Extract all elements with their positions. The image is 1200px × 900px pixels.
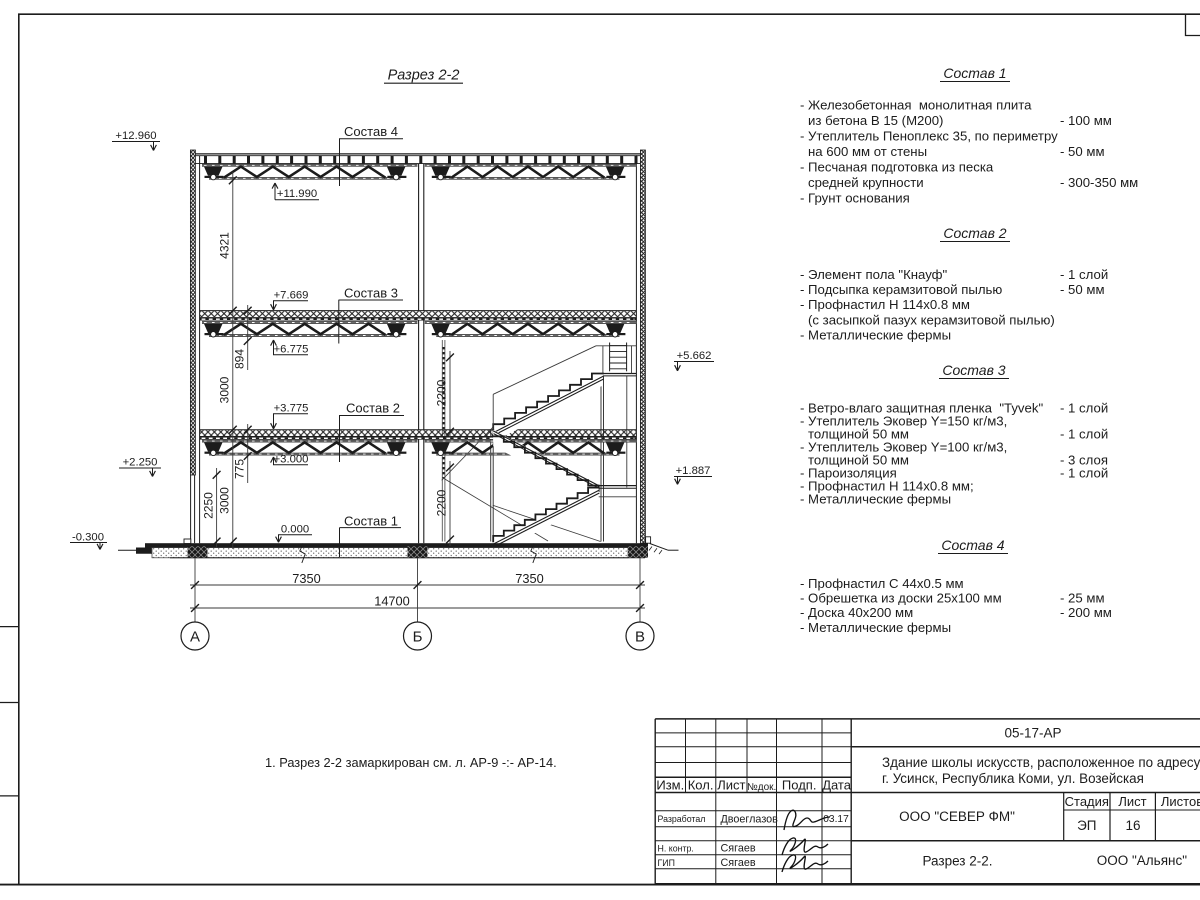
- svg-text:7350: 7350: [292, 571, 320, 586]
- svg-text:-0.300: -0.300: [72, 532, 104, 544]
- svg-text:средней крупности: средней крупности: [808, 175, 924, 190]
- svg-text:2250: 2250: [201, 492, 215, 519]
- svg-text:Двоеглазов: Двоеглазов: [721, 813, 779, 825]
- svg-text:Состав 3: Состав 3: [344, 286, 398, 301]
- svg-text:- 300-350 мм: - 300-350 мм: [1060, 175, 1138, 190]
- svg-text:Состав 2: Состав 2: [943, 225, 1006, 241]
- svg-text:4321: 4321: [218, 232, 232, 259]
- svg-text:- 1 слой: - 1 слой: [1060, 401, 1108, 416]
- svg-text:+5.662: +5.662: [677, 350, 712, 362]
- svg-text:7350: 7350: [515, 571, 543, 586]
- svg-text:Разрез 2-2: Разрез 2-2: [388, 68, 460, 84]
- svg-text:775: 775: [232, 459, 246, 479]
- svg-text:Состав 2: Состав 2: [346, 401, 400, 416]
- svg-text:из бетона В 15 (М200): из бетона В 15 (М200): [808, 113, 943, 128]
- svg-text:+6.775: +6.775: [274, 344, 309, 356]
- svg-text:Сягаев: Сягаев: [721, 843, 756, 855]
- svg-text:Б: Б: [413, 628, 423, 645]
- svg-text:16: 16: [1125, 818, 1140, 833]
- svg-text:+12.960: +12.960: [115, 130, 156, 142]
- svg-text:ООО "СЕВЕР ФМ": ООО "СЕВЕР ФМ": [899, 809, 1015, 824]
- svg-text:№док.: №док.: [747, 782, 776, 793]
- svg-text:0.000: 0.000: [281, 524, 309, 536]
- svg-text:- 100 мм: - 100 мм: [1060, 113, 1112, 128]
- svg-text:+11.990: +11.990: [277, 188, 317, 200]
- svg-text:Состав 3: Состав 3: [942, 362, 1005, 378]
- svg-text:- 50 мм: - 50 мм: [1060, 144, 1105, 159]
- svg-text:Разработал: Разработал: [658, 814, 706, 824]
- svg-text:- Железобетонная монолитная п: - Железобетонная монолитная плита: [800, 98, 1032, 113]
- svg-text:14700: 14700: [374, 594, 410, 609]
- svg-text:+1.887: +1.887: [676, 465, 711, 477]
- svg-text:+3.000: +3.000: [274, 454, 309, 466]
- svg-text:Н. контр.: Н. контр.: [658, 843, 694, 853]
- svg-text:- 1 слой: - 1 слой: [1060, 427, 1108, 442]
- svg-text:ООО "Альянс": ООО "Альянс": [1097, 853, 1187, 868]
- svg-text:+3.775: +3.775: [274, 403, 309, 415]
- svg-text:Изм.: Изм.: [656, 778, 684, 793]
- svg-text:- Доска 40х200 мм: - Доска 40х200 мм: [800, 605, 913, 620]
- svg-text:- Профнастил С 44х0.5 мм: - Профнастил С 44х0.5 мм: [800, 576, 964, 591]
- svg-text:Состав 4: Состав 4: [941, 537, 1004, 553]
- svg-text:- Обрешетка из доски 25х100 мм: - Обрешетка из доски 25х100 мм: [800, 591, 1002, 606]
- svg-text:- Металлические фермы: - Металлические фермы: [800, 327, 951, 342]
- svg-text:Кол.: Кол.: [688, 778, 714, 793]
- svg-text:Подп.: Подп.: [782, 778, 817, 793]
- svg-text:ЭП: ЭП: [1077, 818, 1096, 833]
- svg-text:на 600 мм от стены: на 600 мм от стены: [808, 144, 927, 159]
- svg-text:3000: 3000: [218, 376, 232, 403]
- svg-text:Листов: Листов: [1161, 794, 1200, 809]
- svg-text:- 1 слой: - 1 слой: [1060, 267, 1108, 282]
- svg-text:+2.250: +2.250: [123, 457, 158, 469]
- svg-text:2200: 2200: [435, 489, 449, 516]
- svg-text:2200: 2200: [435, 379, 449, 406]
- svg-text:- 1 слой: - 1 слой: [1060, 466, 1108, 481]
- svg-text:Состав 1: Состав 1: [943, 65, 1006, 81]
- svg-text:05-17-АР: 05-17-АР: [1004, 726, 1061, 741]
- svg-text:- 50 мм: - 50 мм: [1060, 282, 1105, 297]
- svg-text:Состав 1: Состав 1: [344, 514, 398, 529]
- svg-text:г. Усинск, Республика Коми, ул: г. Усинск, Республика Коми, ул. Возейска…: [882, 771, 1144, 786]
- svg-text:- Подсыпка керамзитовой пылью: - Подсыпка керамзитовой пылью: [800, 282, 1002, 297]
- svg-text:+7.669: +7.669: [274, 290, 309, 302]
- svg-text:ГИП: ГИП: [658, 858, 675, 868]
- svg-text:Состав 4: Состав 4: [344, 124, 398, 139]
- svg-text:Лист: Лист: [1118, 794, 1146, 809]
- svg-text:- Грунт основания: - Грунт основания: [800, 191, 910, 206]
- svg-text:(с засыпкой пазух керамзитовой: (с засыпкой пазух керамзитовой пылью): [808, 312, 1055, 327]
- svg-text:- Профнастил Н 114х0.8 мм: - Профнастил Н 114х0.8 мм: [800, 297, 970, 312]
- svg-text:- Песчаная подготовка из песка: - Песчаная подготовка из песка: [800, 160, 994, 175]
- svg-text:Дата: Дата: [822, 778, 852, 793]
- svg-text:03.17: 03.17: [823, 814, 849, 825]
- svg-text:В: В: [635, 628, 645, 645]
- svg-text:А: А: [190, 628, 200, 645]
- svg-text:Лист: Лист: [717, 778, 745, 793]
- svg-text:3000: 3000: [218, 487, 232, 514]
- svg-text:Разрез 2-2.: Разрез 2-2.: [922, 854, 992, 869]
- svg-text:- Металлические фермы: - Металлические фермы: [800, 492, 951, 507]
- svg-text:- 200 мм: - 200 мм: [1060, 605, 1112, 620]
- svg-text:- Металлические фермы: - Металлические фермы: [800, 620, 951, 635]
- svg-text:Здание школы искусств, располо: Здание школы искусств, расположенное по …: [882, 755, 1200, 770]
- svg-text:- 25 мм: - 25 мм: [1060, 591, 1105, 606]
- svg-text:Стадия: Стадия: [1065, 794, 1109, 809]
- svg-text:- Утеплитель Пеноплекс 35, по: - Утеплитель Пеноплекс 35, по периметру: [800, 129, 1058, 144]
- svg-text:894: 894: [232, 349, 246, 369]
- svg-text:1. Разрез 2-2 замаркирован см.: 1. Разрез 2-2 замаркирован см. л. АР-9 -…: [265, 755, 557, 770]
- svg-text:- Элемент пола "Кнауф": - Элемент пола "Кнауф": [800, 267, 948, 282]
- svg-text:Сягаев: Сягаев: [721, 857, 756, 869]
